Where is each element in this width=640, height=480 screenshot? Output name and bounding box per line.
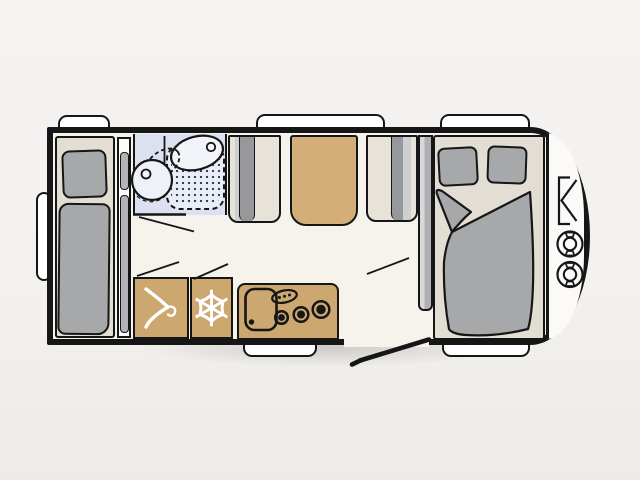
refrigerator bbox=[190, 277, 233, 339]
dinette-table bbox=[290, 135, 358, 226]
double-bed-pillow-left bbox=[437, 146, 479, 187]
kitchen-unit bbox=[237, 283, 339, 340]
washroom bbox=[133, 134, 227, 215]
side-cabinet-shelf bbox=[120, 195, 129, 333]
bench-cushion-edge bbox=[403, 137, 411, 220]
dinette-bench-left bbox=[228, 135, 281, 223]
tall-cabinet bbox=[418, 135, 433, 311]
double-bed-pillow-right bbox=[486, 145, 527, 184]
entry-door-opening bbox=[344, 337, 429, 347]
single-bed-mattress bbox=[57, 203, 110, 336]
single-bed-pillow bbox=[61, 149, 108, 199]
wardrobe bbox=[133, 277, 189, 339]
front-gas-locker bbox=[546, 133, 584, 339]
side-cabinet-shelf bbox=[120, 152, 129, 190]
caravan-floorplan-scene bbox=[0, 0, 640, 480]
bench-backrest bbox=[239, 137, 255, 221]
dinette-bench-right bbox=[366, 135, 418, 222]
